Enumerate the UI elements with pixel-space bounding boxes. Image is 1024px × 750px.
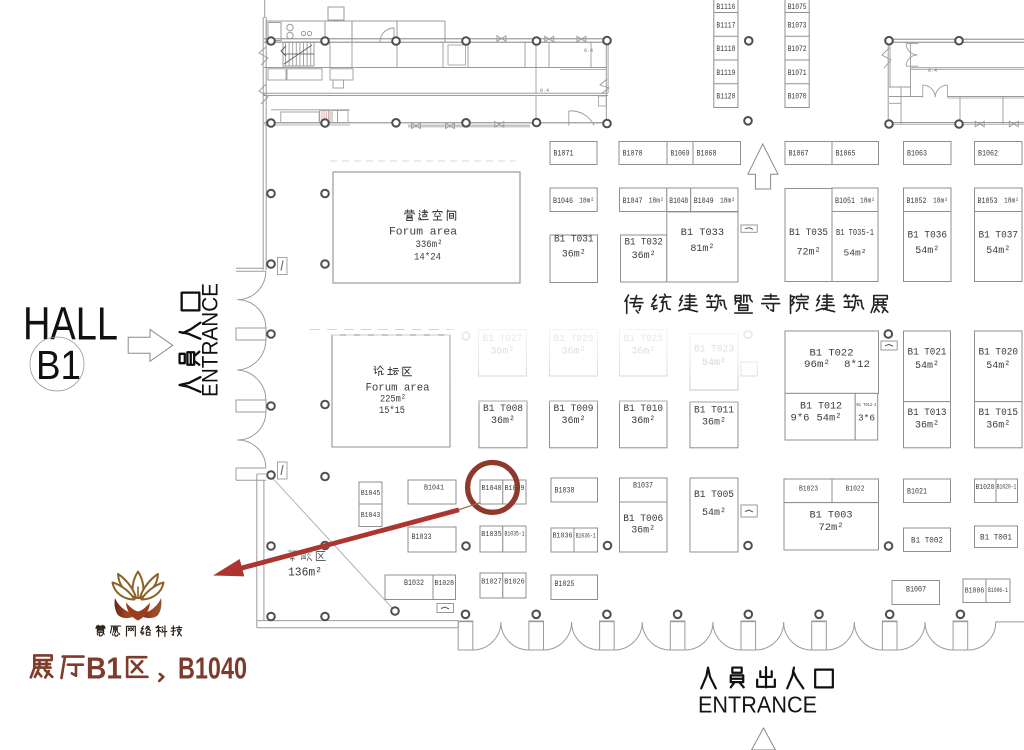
svg-text:18m²: 18m² — [649, 198, 664, 206]
svg-text:B1020: B1020 — [976, 484, 995, 492]
svg-text:B1032: B1032 — [404, 580, 424, 588]
svg-text:36m²: 36m² — [491, 416, 515, 427]
svg-text:18m²: 18m² — [1004, 198, 1019, 206]
svg-text:225m²: 225m² — [380, 394, 406, 406]
svg-text:B1 T013: B1 T013 — [908, 408, 947, 419]
svg-text:B1038: B1038 — [555, 488, 575, 496]
svg-text:B1118: B1118 — [716, 46, 735, 54]
svg-text:B1070: B1070 — [788, 94, 807, 102]
svg-text:18m²: 18m² — [720, 198, 735, 206]
svg-text:B1040: B1040 — [178, 651, 247, 686]
svg-text:B1 T031: B1 T031 — [554, 235, 594, 246]
svg-text:B1025: B1025 — [555, 581, 575, 589]
svg-text:36m²: 36m² — [702, 418, 726, 429]
svg-text:B1 T002: B1 T002 — [911, 537, 943, 546]
svg-text:B1041: B1041 — [424, 484, 444, 492]
svg-text:B1116: B1116 — [716, 4, 735, 12]
svg-text:B1 T020: B1 T020 — [979, 348, 1019, 359]
svg-text:B1047: B1047 — [623, 198, 643, 206]
svg-text:B1063: B1063 — [907, 151, 927, 159]
svg-text:B1068: B1068 — [697, 151, 717, 159]
svg-text:B1 T011: B1 T011 — [694, 406, 734, 417]
svg-text:B1040: B1040 — [482, 485, 502, 493]
svg-text:18m²: 18m² — [933, 198, 948, 206]
svg-text:B1036-1: B1036-1 — [576, 533, 596, 540]
svg-text:B1 T015: B1 T015 — [979, 408, 1019, 419]
svg-text:B1023: B1023 — [799, 486, 818, 494]
svg-text:8*12: 8*12 — [844, 359, 870, 371]
svg-text:136m²: 136m² — [288, 566, 322, 580]
svg-text:36m²: 36m² — [632, 251, 656, 262]
svg-text:54m²: 54m² — [702, 508, 726, 519]
svg-text:B1036: B1036 — [553, 533, 573, 541]
svg-text:54m²: 54m² — [843, 248, 866, 259]
svg-text:B1 T005: B1 T005 — [694, 490, 734, 501]
svg-text:B1026: B1026 — [504, 579, 525, 587]
svg-text:B1028: B1028 — [435, 580, 455, 588]
svg-text:B1 T035: B1 T035 — [789, 228, 828, 239]
svg-text:B1117: B1117 — [716, 22, 735, 30]
svg-text:B1007: B1007 — [906, 587, 926, 595]
svg-text:15*15: 15*15 — [379, 405, 405, 417]
svg-text:B1120: B1120 — [716, 94, 735, 102]
svg-text:B1049: B1049 — [694, 198, 714, 206]
svg-text:9*6: 9*6 — [791, 413, 810, 425]
svg-text:B1: B1 — [36, 342, 81, 388]
svg-text:36m²: 36m² — [986, 421, 1010, 432]
svg-text:B1070: B1070 — [623, 151, 643, 159]
svg-text:54m²: 54m² — [817, 414, 842, 425]
svg-text:Forum area: Forum area — [389, 227, 457, 239]
svg-text:B1071: B1071 — [554, 151, 574, 159]
svg-text:B1 T021: B1 T021 — [908, 348, 947, 359]
svg-text:B1075: B1075 — [788, 4, 807, 12]
svg-text:B1021: B1021 — [907, 488, 927, 496]
svg-text:B1 T037: B1 T037 — [979, 231, 1019, 242]
svg-text:B1 T003: B1 T003 — [810, 509, 853, 521]
svg-text:B1 T035-1: B1 T035-1 — [836, 227, 874, 238]
svg-text:B1053: B1053 — [978, 198, 998, 206]
svg-text:B1006: B1006 — [965, 588, 985, 596]
svg-text:B1 T036: B1 T036 — [908, 231, 948, 242]
svg-text:B1: B1 — [86, 651, 122, 686]
svg-text:0.4: 0.4 — [928, 68, 937, 74]
svg-text:72m²: 72m² — [819, 523, 844, 534]
svg-text:ENTRANCE: ENTRANCE — [698, 692, 817, 718]
svg-text:B1 T033: B1 T033 — [681, 228, 724, 239]
svg-text:B1027: B1027 — [481, 579, 502, 587]
svg-text:B1006-1: B1006-1 — [988, 587, 1008, 594]
svg-text:B1 T032: B1 T032 — [625, 237, 663, 248]
svg-text:36m²: 36m² — [915, 421, 939, 432]
svg-text:336m²: 336m² — [416, 239, 443, 251]
svg-text:B1022: B1022 — [846, 486, 865, 494]
svg-text:B1 T009: B1 T009 — [554, 404, 594, 415]
svg-text:B1 T008: B1 T008 — [483, 404, 523, 415]
svg-text:B1069: B1069 — [671, 151, 690, 159]
svg-text:B1043: B1043 — [361, 512, 381, 520]
svg-text:B1052: B1052 — [907, 198, 927, 206]
svg-text:B1045: B1045 — [361, 490, 381, 498]
svg-text:B1 T006: B1 T006 — [623, 514, 663, 525]
svg-text:18m²: 18m² — [579, 198, 594, 206]
svg-text:B1 T012-1: B1 T012-1 — [857, 402, 877, 408]
svg-text:B1065: B1065 — [836, 151, 856, 159]
svg-text:B1073: B1073 — [788, 22, 807, 30]
svg-text:B1119: B1119 — [716, 70, 735, 78]
svg-text:B1072: B1072 — [788, 46, 807, 54]
svg-text:B1 T012: B1 T012 — [800, 401, 842, 413]
svg-text:ENTRANCE: ENTRANCE — [198, 283, 223, 397]
svg-text:36m²: 36m² — [562, 250, 586, 261]
svg-text:36m²: 36m² — [631, 525, 655, 536]
svg-text:B1 T022: B1 T022 — [810, 348, 854, 360]
svg-text:54m²: 54m² — [986, 361, 1010, 372]
svg-text:B1071: B1071 — [788, 70, 807, 78]
svg-text:B1051: B1051 — [835, 198, 855, 206]
svg-text:B1035: B1035 — [481, 531, 502, 539]
svg-text:0.4: 0.4 — [584, 48, 593, 54]
svg-text:B1020-1: B1020-1 — [997, 484, 1017, 491]
svg-text:81m²: 81m² — [690, 244, 714, 255]
svg-text:B1067: B1067 — [789, 151, 809, 159]
svg-text:B1 T001: B1 T001 — [980, 534, 1012, 543]
svg-text:B1062: B1062 — [978, 151, 998, 159]
svg-text:B1048: B1048 — [669, 198, 688, 206]
svg-text:B1046: B1046 — [553, 198, 573, 206]
svg-text:54m²: 54m² — [915, 361, 939, 372]
svg-text:18m²: 18m² — [860, 198, 875, 206]
svg-text:54m²: 54m² — [986, 246, 1010, 257]
svg-text:B1037: B1037 — [633, 483, 653, 491]
svg-text:B1035-1: B1035-1 — [505, 531, 525, 538]
svg-text:72m²: 72m² — [797, 248, 821, 259]
svg-text:54m²: 54m² — [915, 246, 939, 257]
svg-text:B1033: B1033 — [412, 534, 432, 542]
svg-text:96m²: 96m² — [804, 360, 830, 371]
svg-text:3*6: 3*6 — [858, 412, 875, 423]
svg-text:36m²: 36m² — [631, 416, 655, 427]
svg-text:14*24: 14*24 — [414, 252, 441, 264]
svg-text:36m²: 36m² — [562, 416, 586, 427]
svg-text:B1 T010: B1 T010 — [624, 404, 664, 415]
